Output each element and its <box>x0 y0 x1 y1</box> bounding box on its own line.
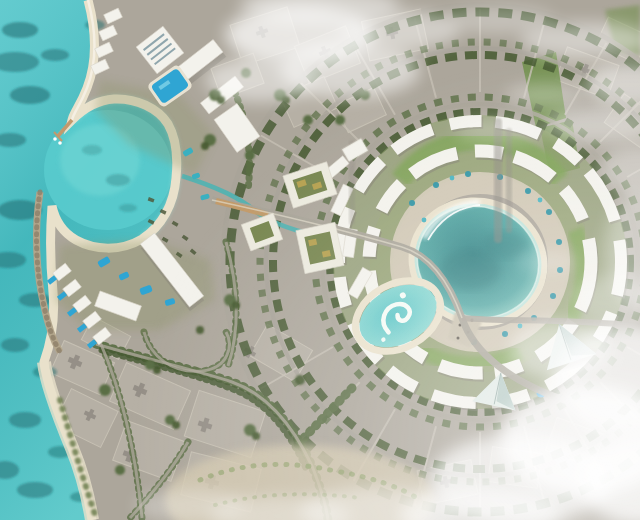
haze-overlay <box>0 0 640 520</box>
aerial-rendering: Development parcels Development parcels <box>0 0 640 520</box>
